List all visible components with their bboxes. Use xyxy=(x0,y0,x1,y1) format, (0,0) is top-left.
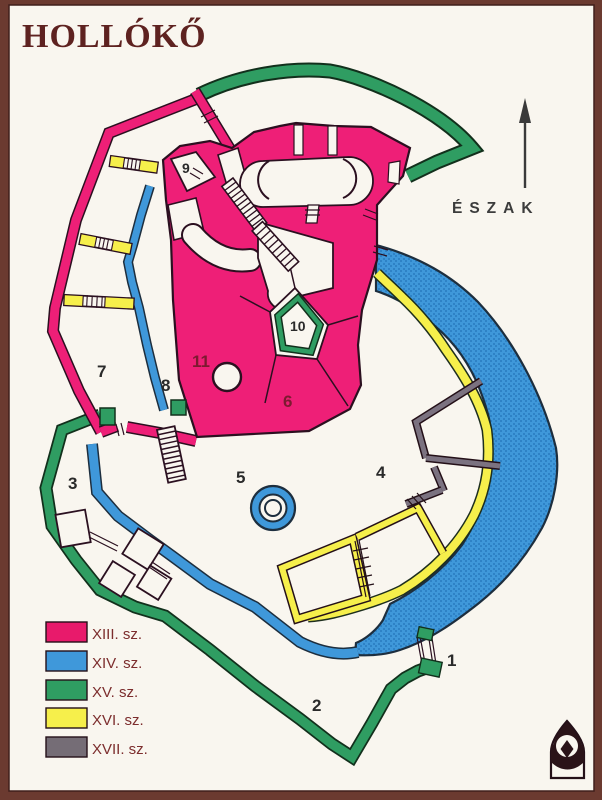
svg-text:ÉSZAK: ÉSZAK xyxy=(452,200,540,217)
svg-text:11: 11 xyxy=(192,352,210,371)
svg-text:HOLLÓKŐ: HOLLÓKŐ xyxy=(22,17,207,55)
svg-text:XIV. sz.: XIV. sz. xyxy=(92,655,142,672)
svg-text:6: 6 xyxy=(283,392,292,411)
svg-text:4: 4 xyxy=(376,463,386,482)
svg-text:10: 10 xyxy=(290,318,306,334)
svg-text:8: 8 xyxy=(161,376,170,395)
svg-text:XVI. sz.: XVI. sz. xyxy=(92,712,144,729)
svg-text:2: 2 xyxy=(312,696,321,715)
svg-text:XV. sz.: XV. sz. xyxy=(92,684,138,701)
svg-text:5: 5 xyxy=(236,468,245,487)
svg-text:9: 9 xyxy=(182,160,190,176)
svg-text:XVII. sz.: XVII. sz. xyxy=(92,741,148,758)
svg-text:XIII. sz.: XIII. sz. xyxy=(92,626,142,643)
svg-text:7: 7 xyxy=(97,362,106,381)
svg-text:3: 3 xyxy=(68,474,77,493)
svg-text:1: 1 xyxy=(447,651,456,670)
